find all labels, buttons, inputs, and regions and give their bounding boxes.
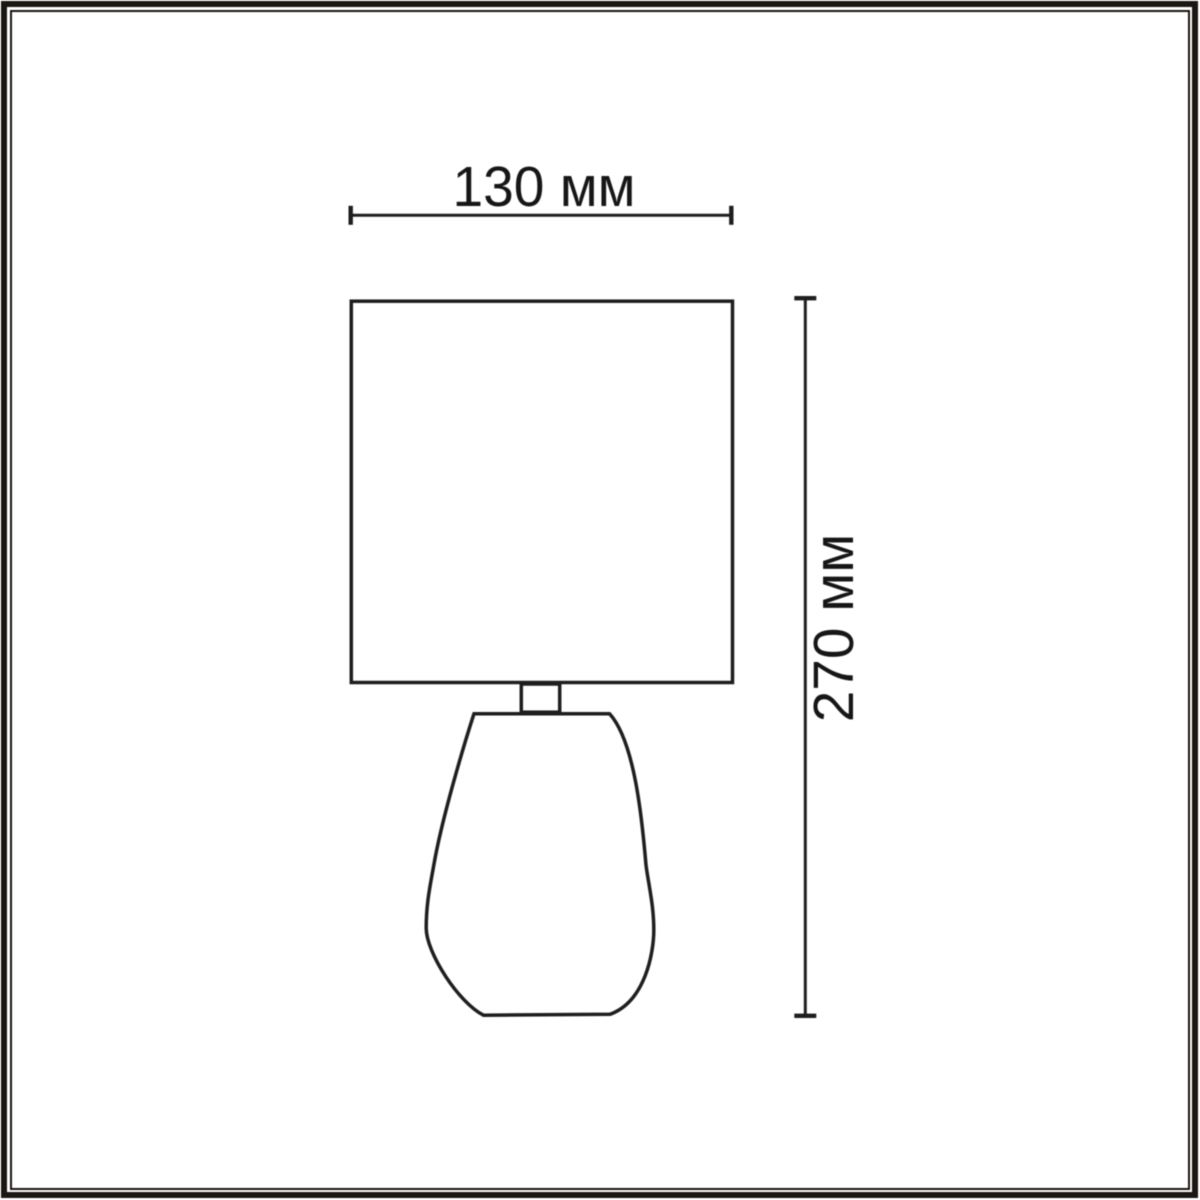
svg-text:130 мм: 130 мм [453, 155, 636, 219]
svg-text:270 мм: 270 мм [802, 534, 866, 723]
